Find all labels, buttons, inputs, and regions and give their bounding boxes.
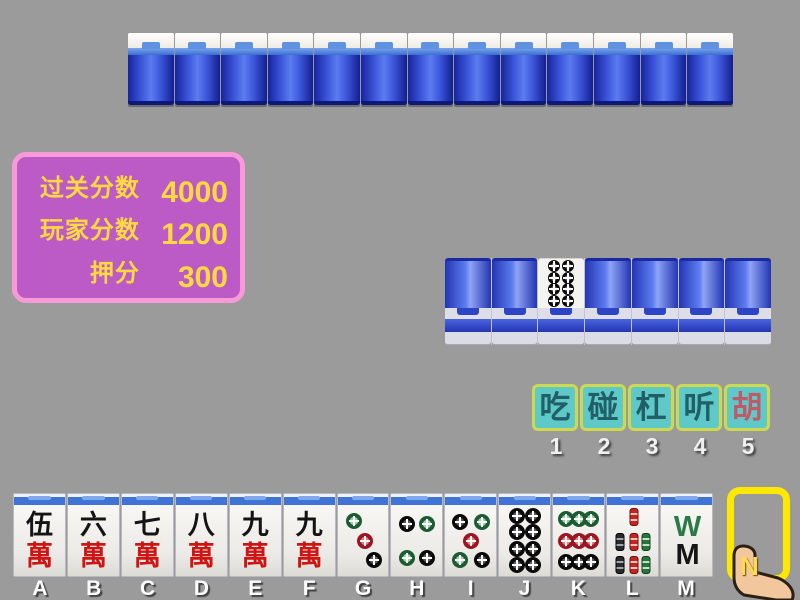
tile-back-cap bbox=[128, 33, 174, 48]
tile-back-strip bbox=[361, 48, 407, 55]
black-dot bbox=[548, 295, 560, 307]
tile-back-edge bbox=[68, 494, 119, 505]
tile-face bbox=[499, 505, 550, 576]
tile-back-cap bbox=[547, 33, 593, 48]
hand-slot-label: M bbox=[659, 577, 713, 600]
tile-face bbox=[338, 505, 389, 576]
tile-back-tab bbox=[561, 42, 579, 49]
tile-character-bottom: 萬 bbox=[242, 541, 269, 572]
hand-tile-eight-wan[interactable]: 八萬 bbox=[175, 493, 228, 577]
tile-face bbox=[607, 505, 658, 576]
tile-edge-blue bbox=[538, 319, 584, 332]
tile-back-body bbox=[221, 55, 267, 105]
tile-back-body bbox=[175, 55, 221, 105]
discard-tile-back bbox=[724, 258, 771, 345]
opponent-tile-back bbox=[221, 33, 267, 105]
opponent-tile-back bbox=[594, 33, 640, 105]
peng-button[interactable]: 碰 bbox=[580, 384, 626, 431]
opponent-tile-back bbox=[641, 33, 687, 105]
red-bamboo-stick bbox=[629, 508, 638, 526]
tile-back-tab bbox=[701, 42, 719, 49]
tile-back-edge bbox=[661, 494, 712, 505]
tile-character-bottom: 萬 bbox=[134, 541, 161, 572]
tile-back-edge bbox=[338, 494, 389, 505]
discard-tile-back bbox=[445, 258, 491, 345]
hand-tile-nine-wan[interactable]: 九萬 bbox=[229, 493, 282, 577]
tile-back-cap bbox=[314, 33, 360, 48]
score-row: 押分 300 bbox=[21, 253, 228, 289]
hand-slot-label: E bbox=[228, 577, 282, 600]
tile-back-strip bbox=[175, 48, 221, 55]
hand-slot-label: L bbox=[605, 577, 659, 600]
tile-edge-bump bbox=[457, 308, 479, 315]
mahjong-game-screen: 过关分数 4000 玩家分数 1200 押分 300 吃 碰 杠 听 胡 1 2… bbox=[0, 0, 800, 600]
tile-back-body bbox=[632, 258, 678, 308]
hand-slot-label: G bbox=[336, 577, 390, 600]
black-dot bbox=[525, 524, 541, 540]
pass-score-value: 4000 bbox=[140, 176, 228, 210]
score-panel: 过关分数 4000 玩家分数 1200 押分 300 bbox=[12, 152, 245, 303]
tile-edge-bump bbox=[644, 308, 666, 315]
black-dot bbox=[509, 557, 525, 573]
player-score-value: 1200 bbox=[140, 218, 228, 252]
discard-tile-back bbox=[678, 258, 725, 345]
tile-edge-bump bbox=[597, 308, 619, 315]
tile-back-tab bbox=[375, 42, 393, 49]
tile-back-body bbox=[585, 258, 631, 308]
red-bamboo-stick bbox=[629, 556, 638, 574]
discard-tile-back bbox=[631, 258, 678, 345]
tile-back-tab bbox=[515, 42, 533, 49]
tile-back-tab bbox=[282, 42, 300, 49]
hand-tile-eight-dots[interactable] bbox=[498, 493, 551, 577]
tile-back-edge bbox=[553, 494, 604, 505]
tile-face bbox=[391, 505, 442, 576]
tile-back-cap bbox=[361, 33, 407, 48]
hand-tile-seven-bamboo[interactable] bbox=[606, 493, 659, 577]
hand-tile-seven-wan[interactable]: 七萬 bbox=[121, 493, 174, 577]
tile-face bbox=[538, 258, 584, 308]
tile-face: 伍萬 bbox=[14, 505, 65, 576]
tile-back-tab bbox=[328, 42, 346, 49]
tile-face: 七萬 bbox=[122, 505, 173, 576]
hand-tile-six-wan[interactable]: 六萬 bbox=[67, 493, 120, 577]
tile-back-strip bbox=[268, 48, 314, 55]
tile-back-strip bbox=[687, 48, 733, 55]
bet-score-value: 300 bbox=[140, 261, 228, 295]
bamboo-m-glyph: M bbox=[675, 541, 697, 569]
tile-back-body bbox=[408, 55, 454, 105]
tile-back-body bbox=[547, 55, 593, 105]
tile-edge-blue bbox=[679, 319, 725, 332]
opponent-tile-back bbox=[361, 33, 407, 105]
tile-back-edge bbox=[391, 494, 442, 505]
black-dot bbox=[419, 550, 435, 566]
tile-back-cap bbox=[501, 33, 547, 48]
black-dot bbox=[474, 552, 490, 568]
tile-back-body bbox=[687, 55, 733, 105]
black-dot bbox=[525, 541, 541, 557]
tile-back-body bbox=[641, 55, 687, 105]
tile-back-cap bbox=[687, 33, 733, 48]
tile-edge-bump bbox=[737, 308, 759, 315]
black-dot bbox=[509, 541, 525, 557]
tile-back-strip bbox=[408, 48, 454, 55]
tile-edge-light bbox=[585, 308, 631, 319]
tile-edge-bottom bbox=[679, 332, 725, 345]
button-number-3: 3 bbox=[628, 433, 676, 460]
tile-character-top: 九 bbox=[242, 510, 269, 541]
hand-tile-four-dots[interactable] bbox=[390, 493, 443, 577]
tile-edge-light bbox=[538, 308, 584, 319]
button-number-4: 4 bbox=[676, 433, 724, 460]
tile-character-top: 八 bbox=[188, 510, 215, 541]
black-dot bbox=[562, 283, 574, 295]
tile-back-strip bbox=[314, 48, 360, 55]
hand-slot-label-row: ABCDEFGHIJKLM bbox=[13, 577, 713, 600]
tile-back-strip bbox=[128, 48, 174, 55]
black-dot bbox=[548, 260, 560, 272]
chi-button[interactable]: 吃 bbox=[532, 384, 578, 431]
tile-back-edge bbox=[445, 494, 496, 505]
draw-slot-label: N bbox=[740, 551, 759, 582]
red-bamboo-stick bbox=[629, 533, 638, 551]
tile-back-body bbox=[725, 258, 771, 308]
player-score-label: 玩家分数 bbox=[21, 210, 140, 245]
discard-row bbox=[445, 258, 771, 345]
tile-face: 六萬 bbox=[68, 505, 119, 576]
tile-edge-bottom bbox=[632, 332, 678, 345]
button-number-1: 1 bbox=[532, 433, 580, 460]
tile-back-tab bbox=[188, 42, 206, 49]
tile-edge-light bbox=[679, 308, 725, 319]
tile-back-strip bbox=[501, 48, 547, 55]
tile-edge-bump bbox=[690, 308, 712, 315]
tile-back-tab bbox=[608, 42, 626, 49]
hand-slot-label: J bbox=[498, 577, 552, 600]
tile-back-cap bbox=[175, 33, 221, 48]
tile-edge-light bbox=[445, 308, 491, 319]
hand-tile-five-dots[interactable] bbox=[444, 493, 497, 577]
tile-back-body bbox=[594, 55, 640, 105]
tile-edge-blue bbox=[445, 319, 491, 332]
tile-edge-bottom bbox=[538, 332, 584, 345]
score-row: 玩家分数 1200 bbox=[21, 210, 228, 246]
tile-back-cap bbox=[594, 33, 640, 48]
tile-back-body bbox=[128, 55, 174, 105]
green-bamboo-stick bbox=[642, 533, 651, 551]
tile-back-body bbox=[445, 258, 491, 308]
green-dot bbox=[399, 550, 415, 566]
tile-back-cap bbox=[268, 33, 314, 48]
black-dot bbox=[399, 516, 415, 532]
discard-tile-back bbox=[491, 258, 538, 345]
tile-back-body bbox=[361, 55, 407, 105]
tile-back-cap bbox=[454, 33, 500, 48]
gang-button[interactable]: 杠 bbox=[628, 384, 674, 431]
black-dot bbox=[525, 508, 541, 524]
tile-back-strip bbox=[454, 48, 500, 55]
tile-back-edge bbox=[176, 494, 227, 505]
tile-back-body bbox=[501, 55, 547, 105]
red-dot bbox=[463, 533, 479, 549]
tile-back-cap bbox=[221, 33, 267, 48]
tile-back-body bbox=[454, 55, 500, 105]
tile-back-body bbox=[679, 258, 725, 308]
opponent-tile-back bbox=[314, 33, 360, 105]
tile-back-strip bbox=[641, 48, 687, 55]
bamboo-w-glyph: W bbox=[674, 513, 699, 541]
tile-character-bottom: 萬 bbox=[188, 541, 215, 572]
hand-slot-label: F bbox=[282, 577, 336, 600]
tile-edge-blue bbox=[632, 319, 678, 332]
opponent-tile-back bbox=[687, 33, 733, 105]
hand-slot-label: I bbox=[444, 577, 498, 600]
hand-slot-label: H bbox=[390, 577, 444, 600]
opponent-tile-back bbox=[268, 33, 314, 105]
tile-edge-blue bbox=[492, 319, 538, 332]
tile-character-bottom: 萬 bbox=[80, 541, 107, 572]
black-dot bbox=[548, 272, 560, 284]
tile-back-edge bbox=[607, 494, 658, 505]
tile-character-top: 六 bbox=[80, 510, 107, 541]
tile-face: 九萬 bbox=[284, 505, 335, 576]
action-number-row: 1 2 3 4 5 bbox=[532, 433, 772, 460]
hand-tile-eight-bamboo[interactable]: WM bbox=[660, 493, 713, 577]
player-hand-row: 伍萬六萬七萬八萬九萬九萬WM bbox=[13, 493, 713, 577]
hand-slot-label: K bbox=[551, 577, 605, 600]
opponent-hand-row bbox=[128, 33, 733, 105]
tile-edge-bottom bbox=[585, 332, 631, 345]
tile-face bbox=[445, 505, 496, 576]
hand-slot-label: C bbox=[121, 577, 175, 600]
tile-back-edge bbox=[14, 494, 65, 505]
black-dot bbox=[509, 508, 525, 524]
tile-character-bottom: 萬 bbox=[26, 541, 53, 572]
button-number-2: 2 bbox=[580, 433, 628, 460]
bet-score-label: 押分 bbox=[21, 253, 140, 288]
hu-button[interactable]: 胡 bbox=[724, 384, 770, 431]
tile-back-cap bbox=[408, 33, 454, 48]
tile-face: 九萬 bbox=[230, 505, 281, 576]
green-dot bbox=[474, 514, 490, 530]
tile-back-edge bbox=[122, 494, 173, 505]
tile-character-top: 七 bbox=[134, 510, 161, 541]
hand-slot-label: D bbox=[175, 577, 229, 600]
tile-edge-light bbox=[632, 308, 678, 319]
opponent-tile-back bbox=[175, 33, 221, 105]
tile-back-strip bbox=[594, 48, 640, 55]
black-dot bbox=[583, 554, 599, 570]
green-dot bbox=[419, 516, 435, 532]
pass-score-label: 过关分数 bbox=[21, 168, 140, 203]
hand-slot-label: A bbox=[13, 577, 67, 600]
tile-edge-bump bbox=[504, 308, 526, 315]
tile-back-strip bbox=[547, 48, 593, 55]
tile-edge-bump bbox=[550, 308, 572, 315]
hand-tile-three-dots[interactable] bbox=[337, 493, 390, 577]
tile-back-edge bbox=[230, 494, 281, 505]
tile-edge-bottom bbox=[445, 332, 491, 345]
ting-button[interactable]: 听 bbox=[676, 384, 722, 431]
black-bamboo-stick bbox=[615, 556, 624, 574]
black-dot bbox=[562, 272, 574, 284]
tile-back-tab bbox=[142, 42, 160, 49]
discard-tile-eight-dots bbox=[537, 258, 584, 345]
hand-tile-nine-wan[interactable]: 九萬 bbox=[283, 493, 336, 577]
tile-back-body bbox=[492, 258, 538, 308]
hand-tile-nine-dots[interactable] bbox=[552, 493, 605, 577]
red-dot bbox=[583, 533, 599, 549]
tile-edge-light bbox=[492, 308, 538, 319]
hand-tile-five-wan[interactable]: 伍萬 bbox=[13, 493, 66, 577]
tile-character-top: 伍 bbox=[26, 510, 53, 541]
tile-edge-blue bbox=[725, 319, 771, 332]
tile-back-tab bbox=[235, 42, 253, 49]
black-dot bbox=[452, 514, 468, 530]
black-dot bbox=[562, 295, 574, 307]
tile-face bbox=[553, 505, 604, 576]
tile-edge-light bbox=[725, 308, 771, 319]
tile-back-edge bbox=[499, 494, 550, 505]
tile-back-edge bbox=[284, 494, 335, 505]
tile-back-body bbox=[314, 55, 360, 105]
black-bamboo-stick bbox=[615, 533, 624, 551]
tile-back-tab bbox=[655, 42, 673, 49]
red-dot bbox=[357, 533, 373, 549]
button-number-5: 5 bbox=[724, 433, 772, 460]
opponent-tile-back bbox=[501, 33, 547, 105]
opponent-tile-back bbox=[128, 33, 174, 105]
green-dot bbox=[346, 513, 362, 529]
black-dot bbox=[366, 552, 382, 568]
tile-edge-bottom bbox=[725, 332, 771, 345]
opponent-tile-back bbox=[547, 33, 593, 105]
black-dot bbox=[509, 524, 525, 540]
green-dot bbox=[452, 552, 468, 568]
tile-face: WM bbox=[661, 505, 712, 576]
tile-back-cap bbox=[641, 33, 687, 48]
black-dot bbox=[548, 283, 560, 295]
tile-back-tab bbox=[468, 42, 486, 49]
tile-face: 八萬 bbox=[176, 505, 227, 576]
hand-slot-label: B bbox=[67, 577, 121, 600]
score-row: 过关分数 4000 bbox=[21, 168, 228, 204]
discard-tile-back bbox=[584, 258, 631, 345]
tile-character-top: 九 bbox=[296, 510, 323, 541]
action-button-bar: 吃 碰 杠 听 胡 bbox=[532, 384, 772, 431]
tile-back-strip bbox=[221, 48, 267, 55]
green-bamboo-stick bbox=[642, 556, 651, 574]
tile-edge-blue bbox=[585, 319, 631, 332]
opponent-tile-back bbox=[454, 33, 500, 105]
black-dot bbox=[525, 557, 541, 573]
black-dot bbox=[562, 260, 574, 272]
green-dot bbox=[583, 511, 599, 527]
tile-back-tab bbox=[421, 42, 439, 49]
tile-back-body bbox=[268, 55, 314, 105]
opponent-tile-back bbox=[408, 33, 454, 105]
tile-edge-bottom bbox=[492, 332, 538, 345]
tile-character-bottom: 萬 bbox=[296, 541, 323, 572]
